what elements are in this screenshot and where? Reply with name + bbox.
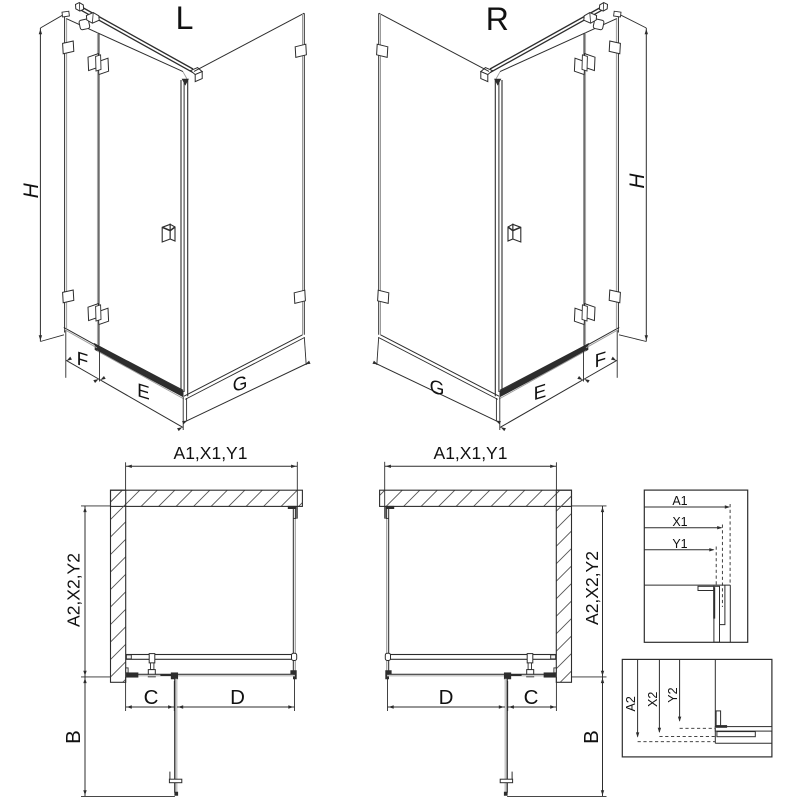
svg-text:C: C [524, 686, 539, 709]
svg-text:Y2: Y2 [666, 687, 680, 702]
svg-text:A1: A1 [672, 494, 687, 508]
svg-text:C: C [144, 686, 159, 709]
svg-text:G: G [233, 372, 248, 396]
svg-text:F: F [77, 348, 89, 373]
svg-text:Y1: Y1 [672, 537, 687, 551]
svg-text:X2: X2 [646, 692, 660, 707]
svg-text:L: L [176, 0, 194, 36]
svg-text:R: R [486, 1, 509, 37]
svg-text:A1,X1,Y1: A1,X1,Y1 [434, 443, 508, 463]
svg-text:E: E [137, 379, 150, 404]
svg-text:D: D [439, 686, 454, 709]
svg-text:B: B [580, 730, 603, 744]
svg-text:A1,X1,Y1: A1,X1,Y1 [174, 443, 248, 463]
svg-text:G: G [430, 376, 445, 400]
svg-text:E: E [534, 380, 547, 405]
svg-text:X1: X1 [672, 515, 687, 529]
svg-text:H: H [626, 173, 649, 189]
svg-text:A2,X2,Y2: A2,X2,Y2 [582, 551, 602, 625]
svg-text:H: H [20, 182, 43, 198]
svg-text:B: B [62, 730, 85, 744]
svg-text:A2,X2,Y2: A2,X2,Y2 [63, 553, 83, 627]
svg-text:D: D [230, 686, 245, 709]
svg-text:F: F [595, 348, 607, 373]
svg-text:A2: A2 [624, 696, 638, 711]
